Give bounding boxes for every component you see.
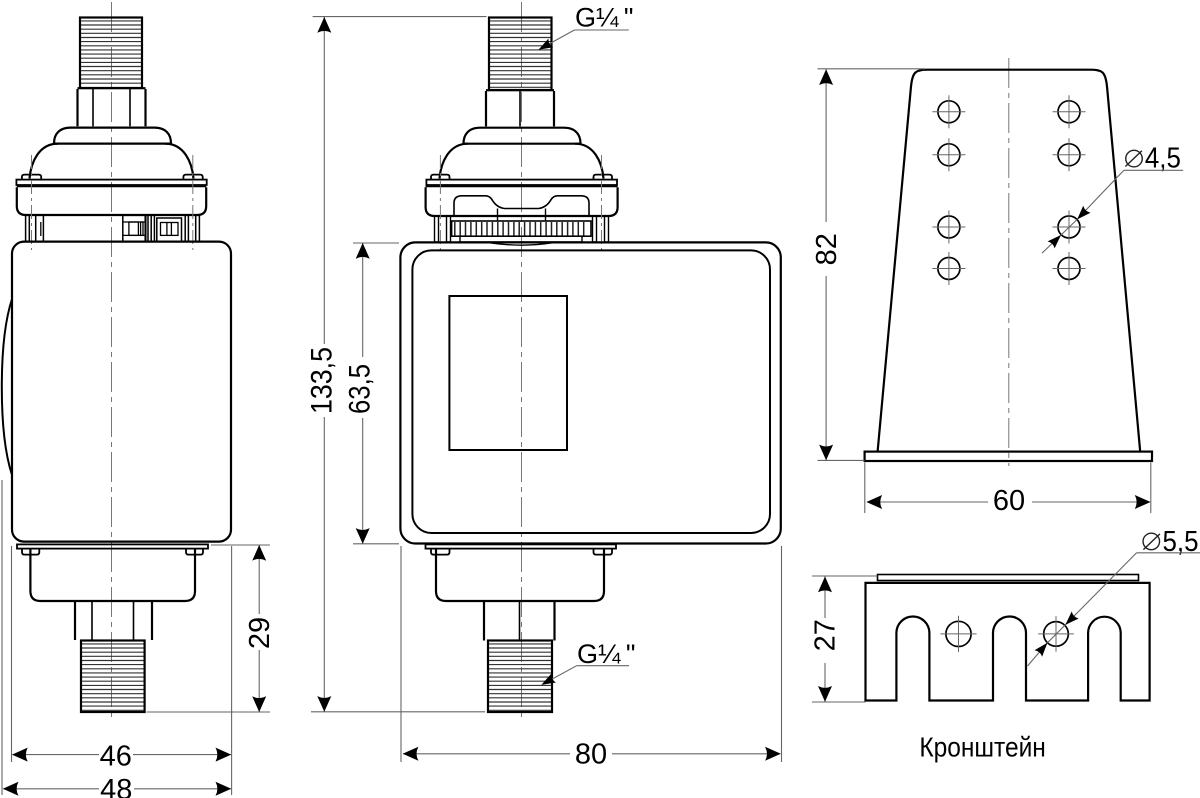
svg-text:Кронштейн: Кронштейн <box>919 731 1046 762</box>
svg-text:27: 27 <box>809 619 841 651</box>
svg-text:63,5: 63,5 <box>344 364 377 414</box>
svg-text:80: 80 <box>575 739 607 771</box>
svg-text:48: 48 <box>100 774 132 798</box>
svg-text:60: 60 <box>993 485 1025 517</box>
svg-text:4,5: 4,5 <box>1145 143 1181 175</box>
svg-text:133,5: 133,5 <box>306 347 339 414</box>
svg-text:G¼ ": G¼ " <box>577 639 636 669</box>
svg-text:G¼ ": G¼ " <box>575 3 634 33</box>
svg-text:29: 29 <box>244 617 276 649</box>
svg-text:46: 46 <box>100 741 132 773</box>
svg-text:82: 82 <box>811 233 843 265</box>
